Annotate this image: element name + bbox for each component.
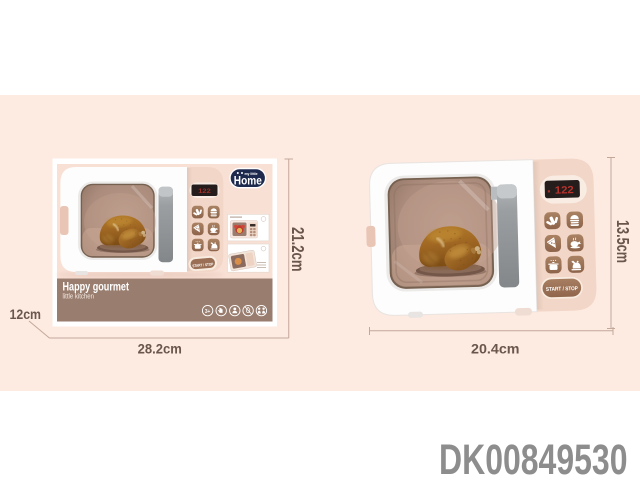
svg-text:21.2cm: 21.2cm bbox=[288, 227, 308, 272]
svg-text:little kitchen: little kitchen bbox=[63, 291, 95, 300]
svg-text:12cm: 12cm bbox=[10, 306, 42, 322]
svg-text:122: 122 bbox=[198, 188, 211, 195]
svg-text:3+: 3+ bbox=[205, 309, 211, 315]
svg-text:28.2cm: 28.2cm bbox=[138, 341, 182, 357]
svg-text:Home: Home bbox=[234, 175, 262, 187]
svg-text:20.4cm: 20.4cm bbox=[471, 341, 520, 357]
svg-text:START / STOP: START / STOP bbox=[546, 286, 578, 293]
svg-text:13.5cm: 13.5cm bbox=[613, 220, 633, 263]
svg-text:122: 122 bbox=[555, 184, 574, 196]
svg-text:my little: my little bbox=[245, 172, 258, 176]
svg-text:DK00849530: DK00849530 bbox=[439, 436, 628, 480]
